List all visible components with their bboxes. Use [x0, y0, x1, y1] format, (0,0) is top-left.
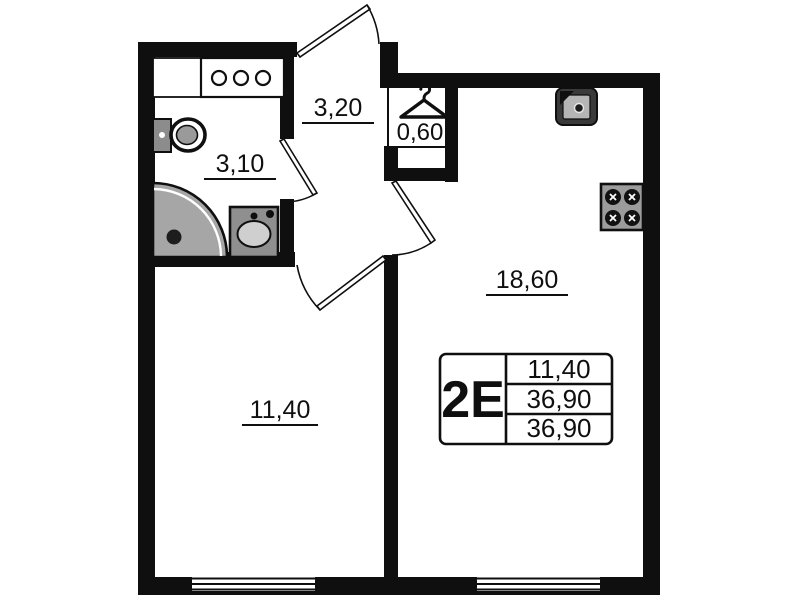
bathroom-area-label: 3,10 — [216, 150, 265, 178]
floor-plan: 3,10 3,20 0,60 18,60 11,40 2E 11,40 36,9… — [0, 0, 799, 600]
wall-entry-stub — [380, 42, 398, 74]
room-door — [297, 256, 386, 310]
wardrobe-area-label: 0,60 — [397, 119, 444, 146]
counter-icon — [153, 58, 201, 97]
room-area-label: 11,40 — [250, 396, 311, 424]
window-room — [192, 577, 315, 591]
unit-type-label: 2E — [441, 371, 505, 429]
washbasin-icon — [230, 207, 278, 257]
hanger-icon — [401, 85, 447, 117]
kitchen-door — [392, 181, 435, 255]
wall-right — [643, 73, 660, 595]
hallway-area-label: 3,20 — [314, 94, 363, 122]
unit-table-row-3: 36,90 — [526, 413, 591, 443]
three-knob-cabinet-icon — [201, 58, 284, 97]
kitchen-sink-icon — [556, 88, 597, 125]
corner-shower-icon — [153, 183, 227, 257]
stove-icon — [601, 184, 643, 230]
unit-table-row-2: 36,90 — [526, 384, 591, 414]
floor-plan-drawing: 3,10 3,20 0,60 18,60 11,40 2E 11,40 36,9… — [0, 0, 799, 600]
window-kitchen — [477, 577, 600, 591]
wall-bathroom-right-lower — [280, 199, 294, 257]
wall-wardrobe-left-stub — [384, 146, 398, 181]
bathroom-door — [280, 139, 317, 202]
kitchen-area-label: 18,60 — [496, 266, 559, 294]
wall-wardrobe-right — [445, 88, 458, 182]
wall-top-bathroom — [138, 42, 297, 57]
wall-between-rooms — [384, 255, 398, 577]
entry-door — [297, 5, 379, 57]
unit-table-row-1: 11,40 — [527, 354, 590, 384]
toilet-icon — [153, 119, 205, 152]
unit-info-table: 2E 11,40 36,90 36,90 — [440, 354, 612, 444]
